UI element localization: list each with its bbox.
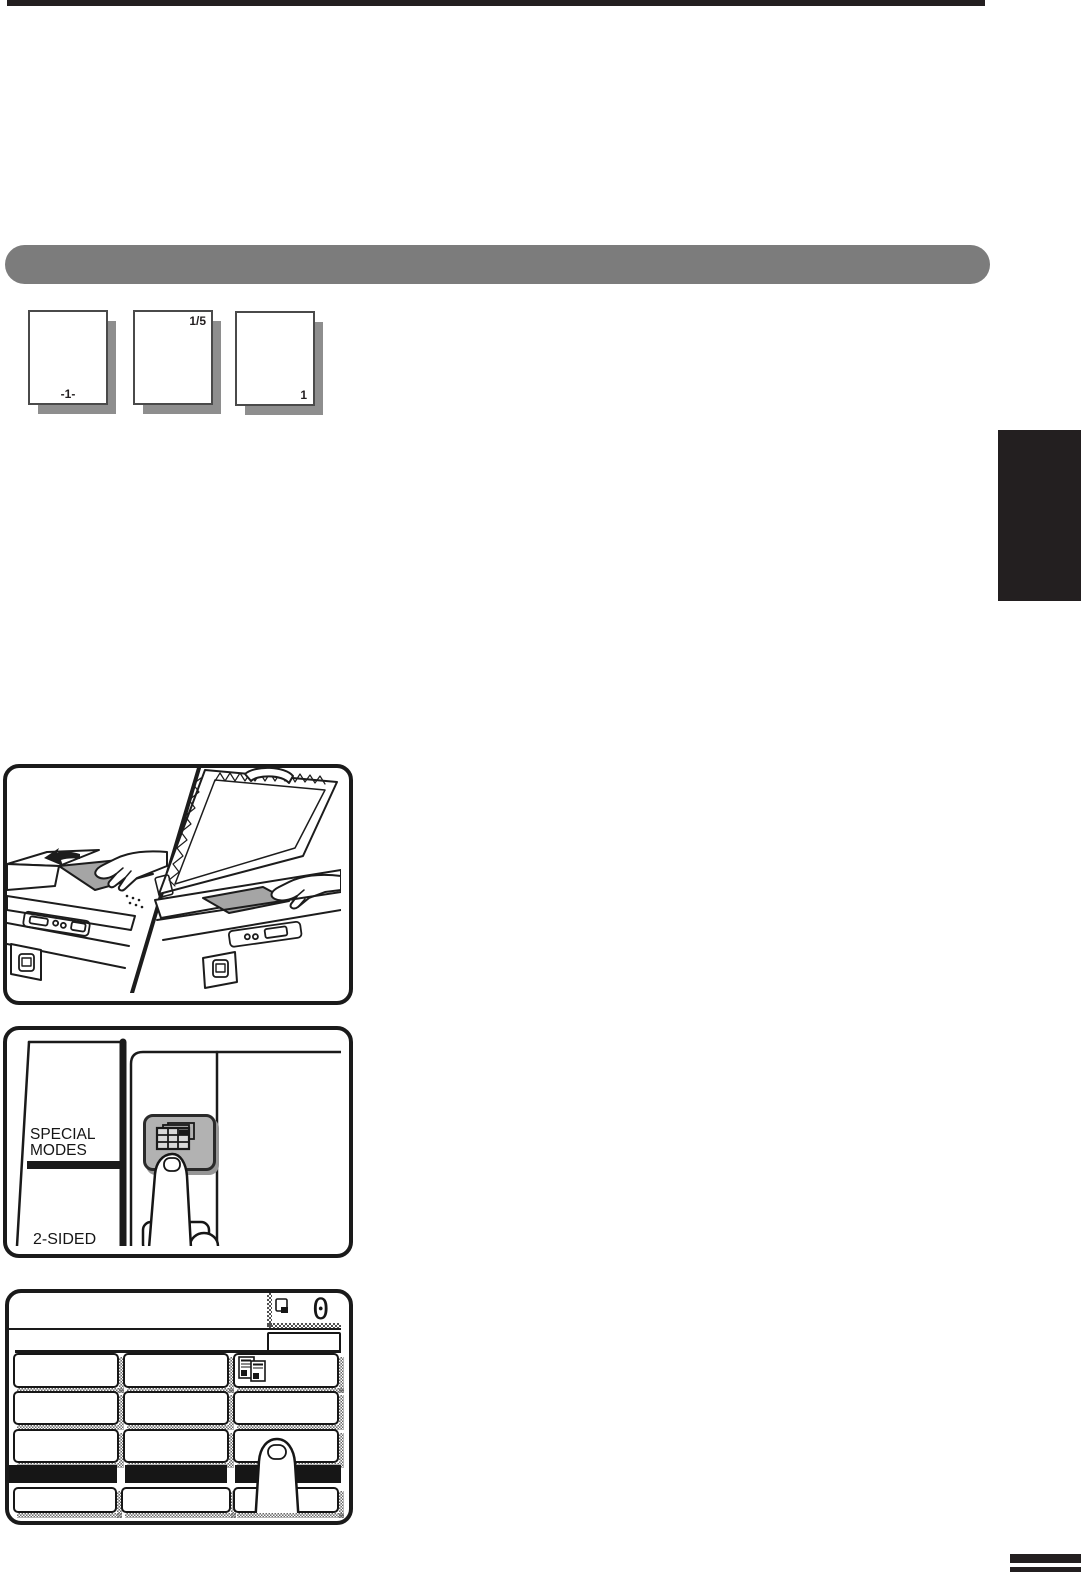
chapter-tab xyxy=(998,430,1081,601)
page-footer-bar xyxy=(1010,1567,1081,1572)
illustration-special-modes-key: SPECIAL MODES 2-SIDED xyxy=(3,1026,353,1258)
fingernail xyxy=(164,1158,180,1171)
section-header-bar xyxy=(5,245,990,284)
illustration-place-originals xyxy=(3,764,353,1005)
illustration-touch-screen: 0 xyxy=(5,1289,353,1525)
page-number-label: 1/5 xyxy=(189,315,206,327)
copier-illustration xyxy=(7,768,341,993)
page-icon-top-right: 1/5 xyxy=(133,310,213,405)
finger-pressing-touch-key xyxy=(9,1293,341,1513)
top-rule xyxy=(7,0,985,6)
page-footer-bar xyxy=(1010,1554,1081,1563)
page-icon-bottom-right: 1 xyxy=(235,311,315,406)
page-icon-bottom-center: -1- xyxy=(28,310,108,405)
fingernail xyxy=(268,1445,286,1459)
manual-page: -1- 1/5 1 xyxy=(0,0,1081,1572)
page-number-label: 1 xyxy=(300,389,307,401)
finger-pressing-key xyxy=(7,1030,341,1246)
page-number-label: -1- xyxy=(30,388,106,400)
